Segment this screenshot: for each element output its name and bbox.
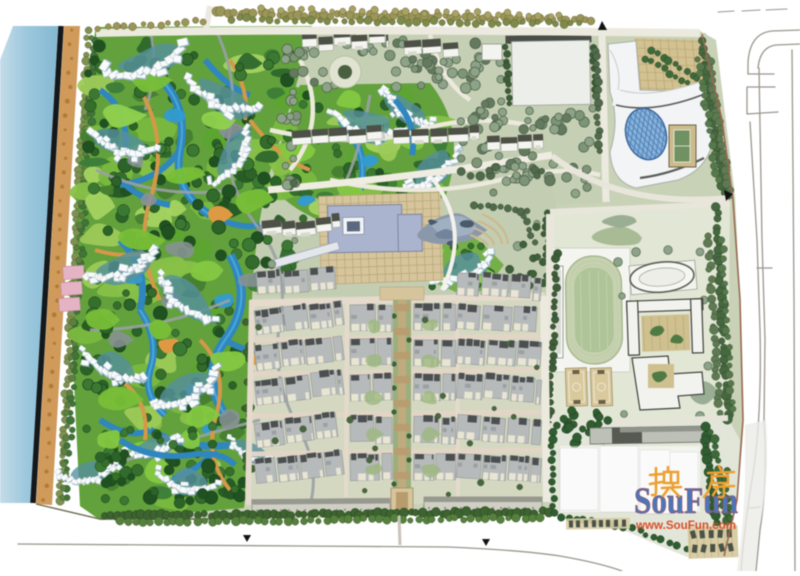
svg-text:www.SouFun.com: www.SouFun.com: [635, 518, 736, 532]
